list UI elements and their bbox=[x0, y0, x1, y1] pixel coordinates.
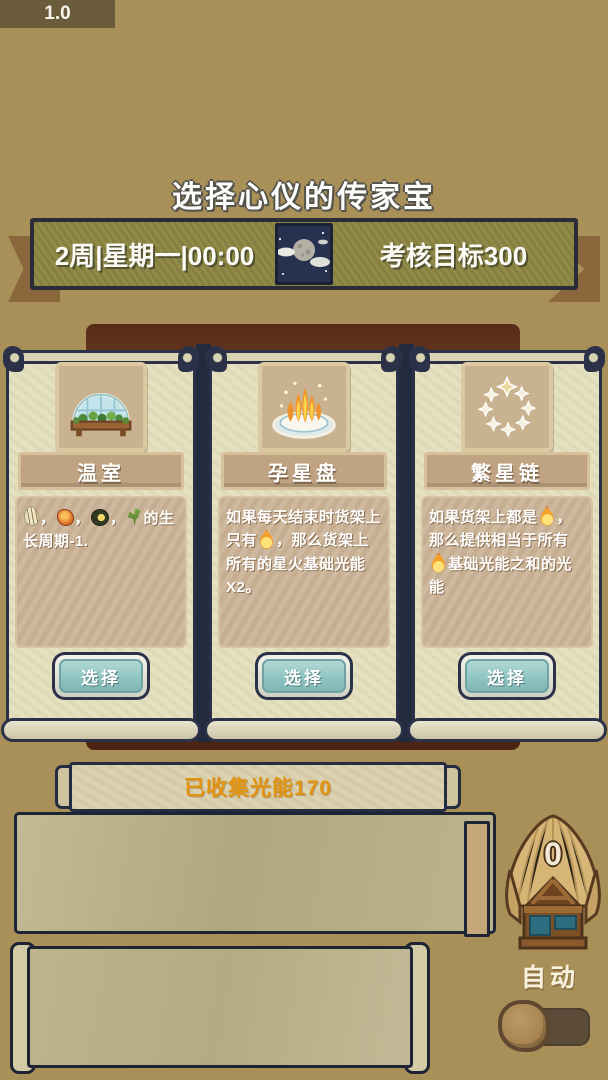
schedule-label: 2周|星期一|00:00 bbox=[34, 236, 275, 273]
heirloom-cards-region: 温室 ，，，的生长周期-1. 选择 bbox=[0, 322, 608, 758]
scroll-curl-icon bbox=[584, 346, 605, 372]
goal-label: 考核目标300 bbox=[333, 236, 574, 273]
select-button-frame: 选择 bbox=[461, 655, 553, 697]
card-scroll-roll bbox=[407, 718, 607, 742]
scroll-curl-icon bbox=[178, 346, 199, 372]
select-button-label: 选择 bbox=[465, 659, 549, 693]
auto-label: 自动 bbox=[505, 958, 595, 994]
heirloom-card-star-plate: 孕星盘 如果每天结束时货架上只有，那么货架上所有的星火基础光能X2。 选择 bbox=[209, 346, 399, 742]
moon-icon bbox=[275, 223, 333, 285]
heirloom-card-greenhouse: 温室 ，，，的生长周期-1. 选择 bbox=[6, 346, 196, 742]
select-button[interactable]: 选择 bbox=[52, 652, 150, 700]
scroll-curl-icon bbox=[3, 346, 24, 372]
flame-icon bbox=[539, 506, 556, 526]
select-button-frame: 选择 bbox=[55, 655, 147, 697]
collected-light-banner: 已收集光能170 bbox=[55, 762, 461, 812]
star-plate-icon bbox=[258, 362, 350, 452]
card-description: 如果货架上都是，那么提供相当于所有基础光能之和的光能 bbox=[421, 496, 593, 648]
scroll-curl-icon bbox=[409, 346, 430, 372]
select-button-label: 选择 bbox=[59, 659, 143, 693]
avocado-seed-icon bbox=[91, 509, 109, 526]
select-button-frame: 选择 bbox=[258, 655, 350, 697]
ribbon-bar: 2周|星期一|00:00 考核目标300 bbox=[30, 218, 578, 290]
card-description: ，，，的生长周期-1. bbox=[15, 496, 187, 648]
queue-panel bbox=[10, 942, 430, 1076]
description-text: 基础光能之和的光能 bbox=[429, 556, 572, 596]
collected-light-label: 已收集光能170 bbox=[69, 762, 447, 812]
hut-icon bbox=[500, 810, 606, 952]
auto-toggle[interactable] bbox=[498, 1000, 590, 1054]
page-title: 选择心仪的传家宝 bbox=[0, 172, 608, 216]
greenhouse-icon bbox=[55, 362, 147, 452]
card-scroll-roll bbox=[204, 718, 404, 742]
description-text: ， bbox=[40, 510, 56, 527]
toggle-knob[interactable] bbox=[498, 1000, 550, 1052]
select-button[interactable]: 选择 bbox=[458, 652, 556, 700]
queue-panel-body bbox=[27, 946, 413, 1068]
scroll-curl-icon bbox=[206, 346, 227, 372]
seed-pod-icon bbox=[22, 505, 40, 527]
orange-bloom-icon bbox=[57, 509, 74, 526]
shelf-panel bbox=[14, 812, 496, 934]
card-title: 孕星盘 bbox=[221, 452, 387, 490]
sprout-icon bbox=[127, 508, 143, 526]
card-scroll-roll bbox=[1, 718, 201, 742]
select-button[interactable]: 选择 bbox=[255, 652, 353, 700]
version-badge: 1.0 bbox=[0, 0, 115, 28]
hut-button[interactable]: 0 bbox=[500, 810, 606, 952]
heirloom-card-star-chain: 繁星链 如果货架上都是，那么提供相当于所有基础光能之和的光能 选择 bbox=[412, 346, 602, 742]
select-button-label: 选择 bbox=[262, 659, 346, 693]
star-ring-icon bbox=[461, 362, 553, 452]
flame-icon bbox=[258, 529, 275, 549]
scroll-curl-icon bbox=[381, 346, 402, 372]
card-title: 繁星链 bbox=[424, 452, 590, 490]
card-description: 如果每天结束时货架上只有，那么货架上所有的星火基础光能X2。 bbox=[218, 496, 390, 648]
game-screen: 1.0 选择心仪的传家宝 2周|星期一|00:00 bbox=[0, 0, 608, 1080]
description-text: ， bbox=[110, 510, 126, 527]
panel-fold bbox=[464, 821, 490, 937]
hut-count: 0 bbox=[500, 836, 606, 873]
heirloom-banner: 2周|星期一|00:00 考核目标300 bbox=[8, 218, 600, 304]
description-text: 如果货架上都是 bbox=[429, 509, 538, 526]
flame-icon bbox=[430, 553, 447, 573]
description-text: ， bbox=[75, 510, 91, 527]
card-title: 温室 bbox=[18, 452, 184, 490]
